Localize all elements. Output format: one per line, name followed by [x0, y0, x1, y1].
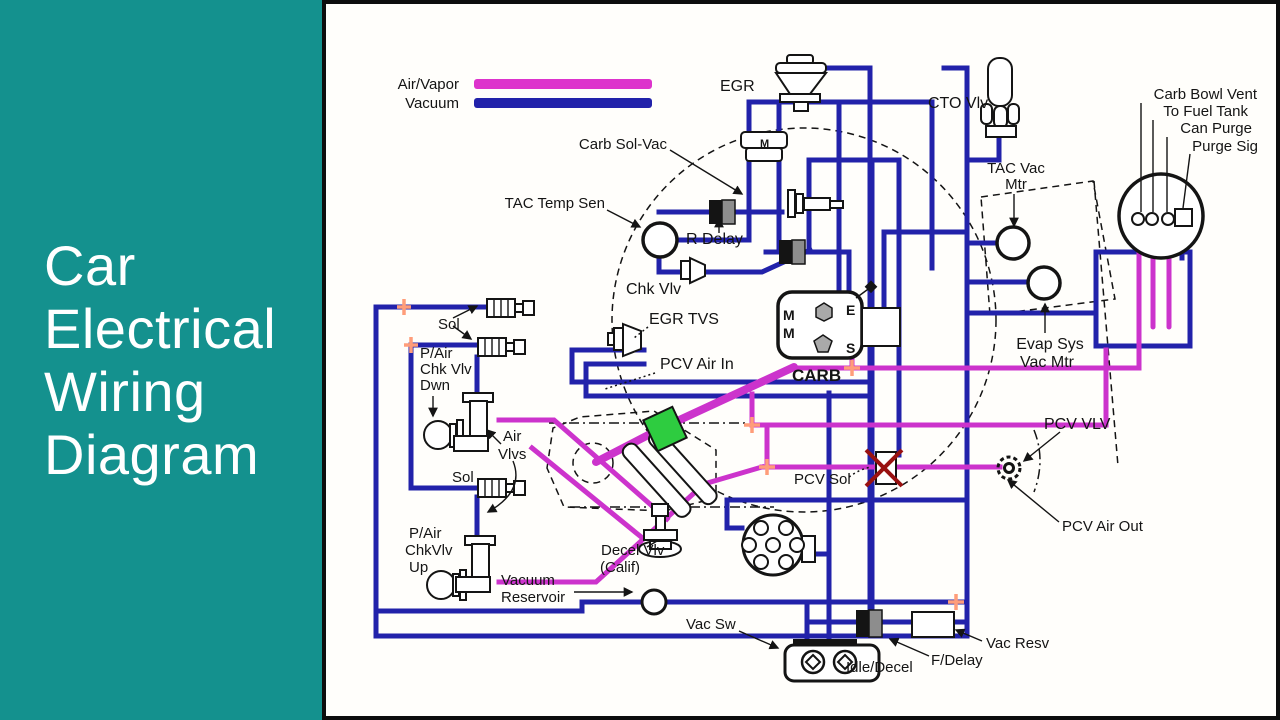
label-evap-sys-vac-mtr-2: Vac Mtr [1020, 354, 1075, 371]
label-air-vlvs-1: Air [503, 428, 521, 445]
label-carb-title: CARB [792, 366, 841, 385]
pair-chk-vlv-dwn-icon [424, 393, 493, 451]
carb-side-box [862, 308, 900, 346]
label-chk-vlv: Chk Vlv [626, 281, 681, 298]
label-to-fuel-tank: To Fuel Tank [1163, 103, 1248, 120]
label-carb-port-m1: M [783, 307, 795, 323]
pcv-vlv-bracket [1034, 430, 1040, 492]
label-carb-port-s: S [846, 340, 855, 356]
label-idle-decel: Idle/Decel [846, 659, 913, 676]
label-pair-chk-vlv-dwn-2: Chk Vlv [420, 361, 472, 378]
label-pcv-air-in: PCV Air In [660, 356, 734, 373]
label-vac-resv: Vac Resv [986, 635, 1050, 652]
tac-temp-sen-icon [643, 223, 677, 257]
chk-vlv-icon [681, 258, 705, 283]
label-cto-vlv: CTO Vlv [928, 95, 988, 112]
label-pcv-sol: PCV Sol [794, 471, 851, 488]
legend-vacuum-label: Vacuum [405, 95, 459, 112]
label-carb-bowl-vent: Carb Bowl Vent [1154, 86, 1258, 103]
legend: Air/Vapor Vacuum [398, 76, 652, 112]
label-tac-temp-sen: TAC Temp Sen [505, 195, 605, 212]
label-pcv-air-out: PCV Air Out [1062, 518, 1144, 535]
r-delay-icon [709, 200, 735, 224]
label-purge-sig: Purge Sig [1192, 138, 1258, 155]
label-sol-upper: Sol [438, 316, 460, 333]
delay-valve-2-icon [779, 240, 805, 264]
legend-air-vapor-swatch [474, 79, 652, 89]
label-pair-chk-vlv-dwn-1: P/Air [420, 345, 453, 362]
label-carb-port-m2: M [783, 325, 795, 341]
label-tac-vac-mtr-2: Mtr [1005, 176, 1027, 193]
title-line-1: Car [44, 234, 322, 297]
label-f-delay: F/Delay [931, 652, 983, 669]
title-panel: Car Electrical Wiring Diagram [0, 0, 322, 720]
label-air-vlvs-2: Vlvs [498, 446, 526, 463]
label-decel-vlv-2: (Calif) [600, 559, 640, 576]
carb-port-hex [816, 303, 832, 321]
sol-valve-lower-icon [478, 479, 525, 497]
legend-vacuum-swatch [474, 98, 652, 108]
label-r-delay: R Delay [686, 231, 743, 248]
egr-valve-icon [776, 55, 826, 111]
label-egr-tvs: EGR TVS [649, 311, 719, 328]
evap-box [1096, 252, 1190, 346]
title-line-4: Diagram [44, 423, 322, 486]
label-sol-lower: Sol [452, 469, 474, 486]
label-pair-chk-vlv-dwn-3: Dwn [420, 377, 450, 394]
label-pcv-vlv: PCV VLV [1044, 416, 1111, 433]
label-carb-sol-vac: Carb Sol-Vac [579, 136, 668, 153]
label-carb-sol-vac-m: M [760, 138, 769, 150]
air-cleaner-port-green [643, 407, 686, 451]
title-line-2: Electrical [44, 297, 322, 360]
label-can-purge: Can Purge [1180, 120, 1252, 137]
label-pair-chkvlv-up-3: Up [409, 559, 428, 576]
label-decel-vlv-1: Decel Vlv [601, 542, 665, 559]
vacuum-reservoir-icon [642, 590, 666, 614]
vac-fitting-icon [788, 190, 843, 217]
label-egr: EGR [720, 78, 755, 95]
carb-pin [865, 280, 878, 293]
label-pair-chkvlv-up-1: P/Air [409, 525, 442, 542]
label-vacuum-reservoir-2: Reservoir [501, 589, 565, 606]
vac-resv-icon [912, 612, 954, 637]
legend-air-vapor-label: Air/Vapor [398, 76, 459, 93]
wiring-diagram: Air/Vapor Vacuum [326, 4, 1276, 716]
f-delay-icon [856, 610, 882, 637]
distributor-icon [742, 515, 815, 575]
sol-valve-upper-1-icon [487, 299, 534, 317]
label-vacuum-reservoir-1: Vacuum [501, 572, 555, 589]
title-line-3: Wiring [44, 360, 322, 423]
diagram-panel: Air/Vapor Vacuum [322, 0, 1280, 720]
label-tac-vac-mtr-1: TAC Vac [987, 160, 1045, 177]
label-vac-sw: Vac Sw [686, 616, 736, 633]
label-evap-sys-vac-mtr-1: Evap Sys [1016, 336, 1084, 353]
vapor-canister-icon [1119, 174, 1203, 258]
slide: Car Electrical Wiring Diagram Air/Vapor … [0, 0, 1280, 720]
label-carb-port-e: E [846, 302, 855, 318]
label-pair-chkvlv-up-2: ChkVlv [405, 542, 453, 559]
tac-vac-mtr-icon [997, 227, 1060, 299]
sol-valve-upper-2-icon [478, 338, 525, 356]
